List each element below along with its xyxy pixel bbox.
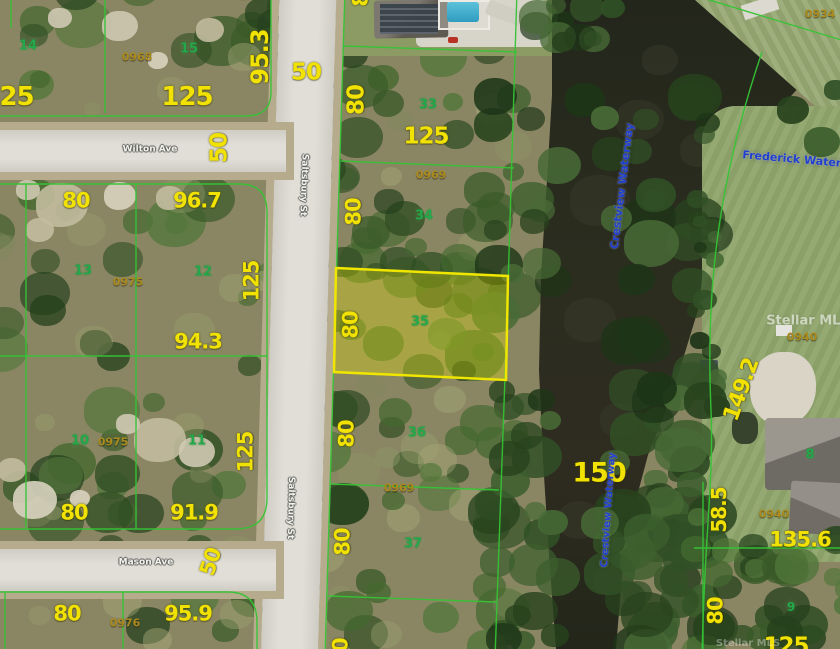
parcel-id-label: 0934: [805, 9, 836, 20]
map-labels-layer: 12512595.35050801258096.712594.380808080…: [0, 0, 840, 649]
dimension-label: 80: [346, 85, 369, 115]
aerial-parcel-map: 12512595.35050801258096.712594.380808080…: [0, 0, 840, 649]
dimension-label: 91.9: [170, 503, 218, 524]
dimension-label: 80: [351, 0, 372, 7]
dimension-label: 80: [341, 311, 362, 338]
dimension-label: 125: [0, 84, 34, 110]
lot-number-label: 11: [188, 435, 206, 448]
dimension-label: 125: [403, 126, 448, 149]
lot-number-label: 33: [419, 99, 437, 112]
parcel-id-label: 0975: [113, 277, 144, 288]
street-name-label: Mason Ave: [119, 559, 174, 568]
street-name-label: Wilton Ave: [123, 146, 178, 155]
lot-number-label: 37: [404, 538, 422, 551]
dimension-label: 95.3: [248, 29, 272, 84]
dimension-label: 96.7: [173, 191, 221, 212]
dimension-label: 125: [161, 84, 212, 110]
watermark: Stellar MLS: [766, 315, 840, 328]
lot-number-label: 12: [194, 266, 212, 279]
lot-number-label: 13: [74, 265, 92, 278]
parcel-id-label: 0975: [98, 437, 129, 448]
dimension-label: 50: [209, 133, 232, 163]
dimension-label: 80: [60, 503, 87, 524]
street-name-label: Saltsbury St: [285, 477, 295, 540]
dimension-label: 50: [291, 62, 321, 85]
dimension-label: 80: [337, 420, 358, 447]
parcel-id-label: 0940: [787, 332, 818, 343]
waterway-name-label: Frederick Waterway: [742, 149, 840, 171]
parcel-id-label: 0968: [122, 52, 153, 63]
parcel-id-label: 0976: [110, 618, 141, 629]
dimension-label: 80: [62, 191, 89, 212]
lot-number-label: 35: [411, 316, 429, 329]
parcel-id-label: 0969: [384, 483, 415, 494]
dimension-label: 58.5: [709, 487, 729, 532]
watermark: Stellar MLS: [716, 639, 780, 649]
dimension-label: 80: [53, 604, 80, 625]
parcel-id-label: 0969: [416, 170, 447, 181]
street-name-label: Saltsbury St: [297, 154, 308, 217]
dimension-label: 80: [331, 638, 352, 649]
lot-number-label: 9: [787, 601, 795, 613]
dimension-label: 80: [344, 198, 365, 225]
lot-number-label: 10: [71, 435, 89, 448]
dimension-label: 95.9: [164, 604, 212, 625]
dimension-label: 80: [333, 528, 354, 555]
dimension-label: 125: [242, 261, 263, 302]
dimension-label: 149.2: [721, 356, 764, 424]
lot-number-label: 14: [19, 40, 37, 53]
dimension-label: 150: [572, 460, 625, 487]
dimension-label: 50: [197, 546, 225, 578]
dimension-label: 135.6: [769, 530, 830, 551]
lot-number-label: 36: [408, 427, 426, 440]
dimension-label: 125: [236, 432, 257, 473]
lot-number-label: 8: [805, 449, 814, 462]
lot-number-label: 34: [415, 210, 433, 223]
dimension-label: 80: [706, 597, 727, 624]
dimension-label: 50: [236, 0, 263, 3]
parcel-id-label: 0940: [759, 509, 790, 520]
lot-number-label: 15: [180, 43, 198, 56]
dimension-label: 94.3: [174, 332, 222, 353]
waterway-name-label: Crestview Waterway: [609, 122, 635, 249]
